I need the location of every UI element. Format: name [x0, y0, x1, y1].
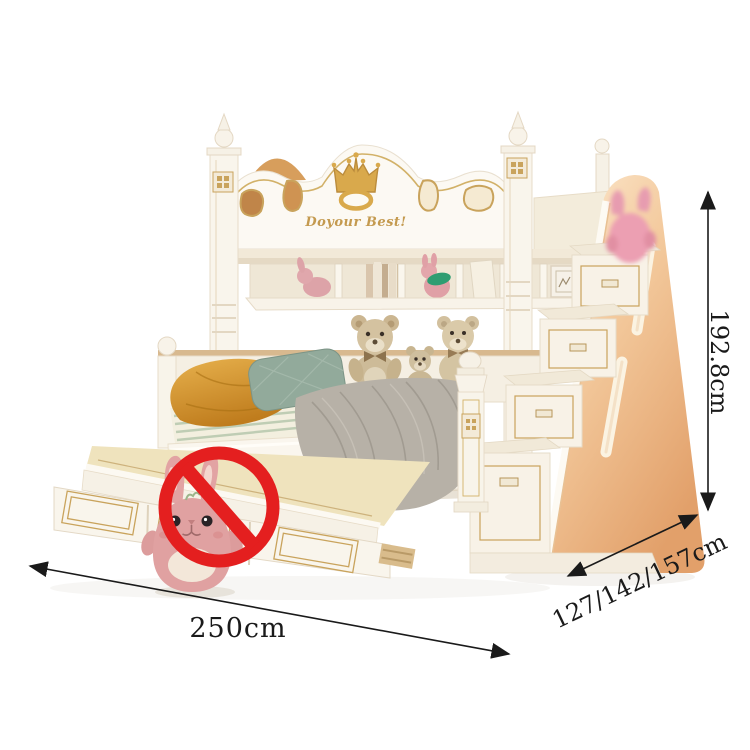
gold-rosette [462, 414, 480, 438]
stair-step-3[interactable] [504, 370, 594, 447]
product-dimension-image: Doyour Best! [0, 0, 750, 750]
gold-rosette [213, 172, 233, 192]
bunk-bed-illustration: Doyour Best! [0, 0, 750, 750]
height-dimension-label: 192.8cm [705, 310, 733, 415]
shelf-board [246, 298, 596, 310]
headboard-slogan: Doyour Best! [304, 215, 406, 230]
headboard-cutout [464, 186, 493, 211]
width-dimension-label: 250cm [189, 613, 286, 644]
headboard-cutout [283, 181, 302, 211]
rear-bedpost-finial [595, 139, 609, 200]
finial-ball [509, 127, 527, 145]
corner-post [454, 352, 488, 512]
picture-book [470, 260, 496, 298]
headboard-cutout [419, 180, 438, 210]
books [366, 262, 403, 298]
gold-rosette [507, 158, 527, 178]
headboard-cutout [241, 190, 264, 216]
upper-bunk-base [213, 249, 590, 258]
stair-step-2[interactable] [538, 304, 628, 377]
finial-ball [215, 129, 233, 147]
